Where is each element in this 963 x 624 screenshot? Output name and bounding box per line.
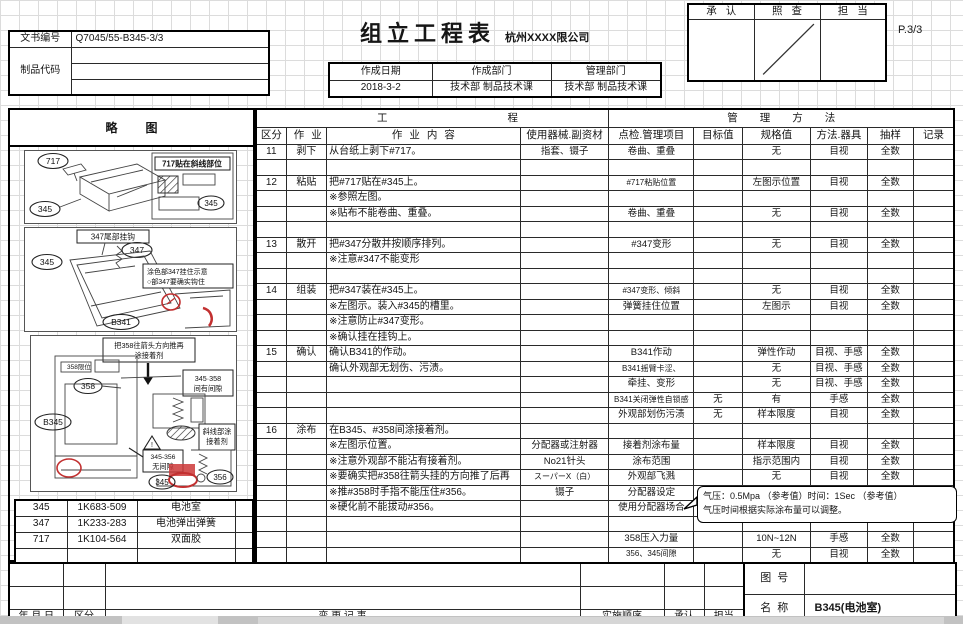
cell: 确认B341的作动。	[327, 346, 521, 362]
cell	[609, 423, 694, 439]
cell: 电池室	[137, 500, 235, 516]
svg-text:把358往箭头方向推再: 把358往箭头方向推再	[114, 341, 184, 350]
cell: 双面胶	[137, 532, 235, 548]
diagonal-slash	[755, 20, 820, 81]
cell: 目视	[811, 439, 867, 455]
cell	[694, 222, 742, 238]
cell	[609, 191, 694, 207]
cell: B341摇臂卡涩、	[609, 361, 694, 377]
cell: ※注意防止#347变形。	[327, 315, 521, 331]
cell: 15	[256, 346, 286, 362]
cell	[256, 408, 286, 424]
cell	[256, 222, 286, 238]
cell: 确认	[286, 346, 326, 362]
cell	[520, 330, 609, 346]
table-row: 11剥下从台纸上剥下#717。指套、镊子卷曲、重叠无目视全数	[256, 144, 954, 160]
cell	[327, 392, 521, 408]
cell	[327, 516, 521, 532]
cell	[286, 191, 326, 207]
svg-text:345: 345	[204, 199, 218, 208]
cell	[520, 299, 609, 315]
cell	[256, 439, 286, 455]
table-row: B341关闭弹性自锁感无有手感全数	[256, 392, 954, 408]
cell: 358压入力量	[609, 532, 694, 548]
cell	[520, 377, 609, 393]
cell: 全数	[867, 237, 913, 253]
cell: ※贴布不能卷曲、重叠。	[327, 206, 521, 222]
cell: 样本限度	[742, 408, 811, 424]
cell: 目视	[811, 454, 867, 470]
cell	[914, 206, 954, 222]
date-label: 作成日期	[329, 63, 432, 80]
product-code-row3	[71, 79, 269, 95]
cell: No21针头	[520, 454, 609, 470]
doc-info-table: 文书编号 Q7045/55-B345-3/3 制品代码	[8, 30, 270, 96]
cell: 全数	[867, 346, 913, 362]
cell: #717粘贴位置	[609, 175, 694, 191]
check-label: 照查	[754, 4, 820, 19]
cell: ※参照左图。	[327, 191, 521, 207]
cell: 手感	[811, 532, 867, 548]
cell	[256, 206, 286, 222]
cell: 目视	[811, 144, 867, 160]
cell	[256, 191, 286, 207]
cell: 全数	[867, 532, 913, 548]
cell	[694, 191, 742, 207]
cell: 14	[256, 284, 286, 300]
col-record: 记录	[914, 127, 954, 144]
cell	[520, 408, 609, 424]
cell	[694, 532, 742, 548]
svg-text:356: 356	[213, 473, 227, 482]
cell	[914, 377, 954, 393]
cell	[286, 377, 326, 393]
cell	[327, 160, 521, 176]
sketch-glue-application: 把358往箭头方向推再 涂接着剂 358限位 358 345·358 间有间隙	[30, 335, 237, 492]
cell	[286, 532, 326, 548]
cell: 指套、镊子	[520, 144, 609, 160]
page-title: 组立工程表	[360, 16, 495, 48]
col-content: 作业内容	[327, 127, 521, 144]
cell: 左图示位置	[742, 175, 811, 191]
cell	[286, 439, 326, 455]
cell: 确认外观部无划伤、污渍。	[327, 361, 521, 377]
cell: 牵挂、变形	[609, 377, 694, 393]
cell	[286, 485, 326, 501]
svg-text:345·358: 345·358	[195, 374, 221, 383]
charge-sign-cell	[820, 19, 886, 81]
strip-segment	[258, 617, 944, 624]
cell	[286, 547, 326, 563]
cell: 散开	[286, 237, 326, 253]
svg-text:接着剂: 接着剂	[206, 437, 228, 446]
table-row: 3451K683-509电池室	[15, 500, 253, 516]
check-sign-cell	[754, 19, 820, 81]
cell	[286, 160, 326, 176]
svg-text:间有间隙: 间有间隙	[194, 384, 223, 393]
svg-text:B341: B341	[111, 317, 131, 327]
cell: 全数	[867, 392, 913, 408]
cell	[694, 454, 742, 470]
cell	[256, 361, 286, 377]
table-row: 7171K104-564双面胶	[15, 532, 253, 548]
cell: 组装	[286, 284, 326, 300]
cell: 16	[256, 423, 286, 439]
cell	[694, 361, 742, 377]
table-row: ※确认挂在挂钩上。	[256, 330, 954, 346]
cell	[914, 423, 954, 439]
cell	[694, 377, 742, 393]
table-row: ※注意防止#347变形。	[256, 315, 954, 331]
cell: 手感	[811, 392, 867, 408]
cell: 全数	[867, 377, 913, 393]
cell: 有	[742, 392, 811, 408]
cell	[256, 454, 286, 470]
table-row: ※参照左图。	[256, 191, 954, 207]
cell: ※确认挂在挂钩上。	[327, 330, 521, 346]
cell	[520, 175, 609, 191]
cell	[256, 392, 286, 408]
cell	[520, 284, 609, 300]
approve-sign-cell	[688, 19, 754, 81]
cell: 717	[15, 532, 67, 548]
cell: 无	[742, 547, 811, 563]
svg-text:717: 717	[46, 156, 60, 166]
cell	[914, 346, 954, 362]
cell	[286, 470, 326, 486]
cell	[286, 253, 326, 269]
cell: 弹性作动	[742, 346, 811, 362]
cell	[286, 361, 326, 377]
cell	[867, 315, 913, 331]
cell	[867, 160, 913, 176]
cell	[520, 361, 609, 377]
cell: 目视、手感	[811, 377, 867, 393]
cell	[520, 392, 609, 408]
svg-text:涂接着剂: 涂接着剂	[135, 351, 164, 360]
col-sampling: 抽样	[867, 127, 913, 144]
cell: 剥下	[286, 144, 326, 160]
cell: 电池弹出弹簧	[137, 516, 235, 532]
cell: 无	[742, 206, 811, 222]
cell	[914, 144, 954, 160]
cell	[286, 392, 326, 408]
cell: 无	[742, 470, 811, 486]
cell	[811, 253, 867, 269]
cell: ※要确实把#358往箭头挂的方向推了后再	[327, 470, 521, 486]
cell: ※推#358时手指不能压住#356。	[327, 485, 521, 501]
cell	[327, 532, 521, 548]
svg-text:B345: B345	[43, 417, 63, 427]
doc-no-value: Q7045/55-B345-3/3	[71, 31, 269, 47]
cell	[235, 532, 253, 548]
product-code-row2	[71, 63, 269, 79]
table-row: 外观部划伤污渍无样本限度目视全数	[256, 408, 954, 424]
cell	[914, 268, 954, 284]
svg-text:!: !	[151, 442, 153, 449]
cell: 把#347分散并按顺序排列。	[327, 237, 521, 253]
cell	[914, 160, 954, 176]
cell: 无	[694, 408, 742, 424]
table-row: ※贴布不能卷曲、重叠。卷曲、重叠无目视全数	[256, 206, 954, 222]
mgmt-dept-value: 技术部 制品技术课	[551, 80, 661, 97]
table-row: 358压入力量10N~12N手感全数	[256, 532, 954, 548]
cell	[914, 547, 954, 563]
cell: 目视、手感	[811, 346, 867, 362]
cell: 全数	[867, 206, 913, 222]
cell	[256, 516, 286, 532]
cell	[327, 408, 521, 424]
cell: ※硬化前不能拔动#356。	[327, 501, 521, 517]
cell	[914, 237, 954, 253]
cell	[811, 160, 867, 176]
cell	[694, 160, 742, 176]
cell: 卷曲、重叠	[609, 144, 694, 160]
cell: B341关闭弹性自锁感	[609, 392, 694, 408]
cell	[867, 253, 913, 269]
cell: 347	[15, 516, 67, 532]
date-value: 2018-3-2	[329, 80, 432, 97]
cell	[694, 315, 742, 331]
cell: 无	[694, 392, 742, 408]
table-row: 12粘贴把#717贴在#345上。#717粘贴位置左图示位置目视全数	[256, 175, 954, 191]
cell	[811, 222, 867, 238]
cell	[694, 253, 742, 269]
cell	[609, 222, 694, 238]
cell	[694, 330, 742, 346]
cell	[742, 160, 811, 176]
table-row: 15确认确认B341的作动。B341作动弹性作动目视、手感全数	[256, 346, 954, 362]
cell	[914, 253, 954, 269]
cell: ※注意#347不能变形	[327, 253, 521, 269]
cell	[694, 284, 742, 300]
cell: 目视	[811, 175, 867, 191]
cell	[256, 268, 286, 284]
cell	[286, 206, 326, 222]
cell: 涂布	[286, 423, 326, 439]
cell: 无	[742, 361, 811, 377]
svg-text:358限位: 358限位	[67, 362, 91, 371]
drawing-no-label: 图号	[744, 563, 804, 594]
process-section-header: 工程	[256, 109, 609, 127]
cell	[914, 175, 954, 191]
company-name: 杭州XXXX限公司	[505, 29, 589, 45]
cell	[867, 268, 913, 284]
col-method: 方法.器具	[811, 127, 867, 144]
cell: 弹簧挂住位置	[609, 299, 694, 315]
sketch-panel: 略图 717 345	[8, 108, 255, 562]
product-code-label: 制品代码	[9, 47, 71, 95]
cell: 无	[742, 144, 811, 160]
col-kubun: 区分	[256, 127, 286, 144]
cell: 全数	[867, 454, 913, 470]
cell: 左图示	[742, 299, 811, 315]
callout-line1: 气压：0.5Mpa （参考值）时间：1Sec （参考值）	[703, 490, 952, 504]
dispenser-setting-callout: 气压：0.5Mpa （参考值）时间：1Sec （参考值） 气压时间根据实际涂布量…	[697, 486, 957, 523]
cell: 10N~12N	[742, 532, 811, 548]
svg-text:○部347要确实钩住: ○部347要确实钩住	[147, 277, 205, 286]
cell	[694, 547, 742, 563]
cell	[256, 547, 286, 563]
cell	[694, 144, 742, 160]
cell: 1K233-283	[67, 516, 137, 532]
cell: 把#717贴在#345上。	[327, 175, 521, 191]
approve-label: 承认	[688, 4, 754, 19]
col-check-item: 点检.管理项目	[609, 127, 694, 144]
table-row: ※注意#347不能变形	[256, 253, 954, 269]
cell	[286, 408, 326, 424]
table-row: ※要确实把#358往箭头挂的方向推了后再スーパーX（白）外观部飞溅无目视全数	[256, 470, 954, 486]
cell	[286, 299, 326, 315]
cell	[520, 532, 609, 548]
product-code-row1	[71, 47, 269, 63]
cell	[694, 206, 742, 222]
cell	[327, 377, 521, 393]
cell: 目视	[811, 206, 867, 222]
cell	[867, 191, 913, 207]
cell	[520, 423, 609, 439]
cell	[286, 454, 326, 470]
cell: 全数	[867, 299, 913, 315]
svg-text:347: 347	[130, 245, 144, 255]
cell: 指示范围内	[742, 454, 811, 470]
cell: ※注意外观部不能沾有接着剂。	[327, 454, 521, 470]
cell	[694, 175, 742, 191]
cell	[742, 315, 811, 331]
strip-segment	[122, 616, 218, 624]
sketch-347-hook: 347尾部挂钩 347 345 涂色部347挂住示意 ○部347要确实钩住	[24, 227, 237, 332]
cell	[742, 253, 811, 269]
cell	[609, 315, 694, 331]
window-bottom-strip	[0, 616, 963, 624]
cell	[694, 268, 742, 284]
cell	[914, 532, 954, 548]
cell	[520, 268, 609, 284]
cell	[256, 160, 286, 176]
cell: 目视	[811, 547, 867, 563]
callout-line2: 气压时间根据实际涂布量可以调整。	[703, 504, 952, 518]
cell	[327, 268, 521, 284]
cell: B341作动	[609, 346, 694, 362]
cell	[914, 191, 954, 207]
callout-tail	[683, 496, 698, 511]
cell	[256, 532, 286, 548]
svg-text:345: 345	[38, 204, 52, 214]
cell	[867, 330, 913, 346]
cell	[609, 253, 694, 269]
charge-label: 担当	[820, 4, 886, 19]
svg-text:358: 358	[81, 381, 95, 391]
cell: ※左图示位置。	[327, 439, 521, 455]
cell	[520, 253, 609, 269]
cell: 无	[742, 377, 811, 393]
cell	[520, 516, 609, 532]
parts-list-table: 3451K683-509电池室3471K233-283电池弹出弹簧7171K10…	[14, 499, 254, 565]
cell: 接着剂涂布量	[609, 439, 694, 455]
cell: 分配器或注射器	[520, 439, 609, 455]
cell	[256, 470, 286, 486]
cell	[694, 423, 742, 439]
cell: 11	[256, 144, 286, 160]
cell	[256, 485, 286, 501]
cell: 全数	[867, 361, 913, 377]
cell	[256, 299, 286, 315]
cell: 12	[256, 175, 286, 191]
meta-table: 图号 名称 B345(电池室)	[743, 562, 957, 624]
cell	[286, 330, 326, 346]
cell	[609, 160, 694, 176]
cell	[742, 330, 811, 346]
cell	[914, 330, 954, 346]
svg-text:347尾部挂钩: 347尾部挂钩	[91, 232, 135, 242]
svg-text:345-356: 345-356	[151, 454, 176, 461]
cell: 在B345、#358间涂接着剂。	[327, 423, 521, 439]
cell: 全数	[867, 547, 913, 563]
cell	[256, 330, 286, 346]
cell	[694, 439, 742, 455]
table-row: ※左图示。装入#345的槽里。弹簧挂住位置左图示目视全数	[256, 299, 954, 315]
cell	[520, 547, 609, 563]
cell: 粘贴	[286, 175, 326, 191]
cell: 目视、手感	[811, 361, 867, 377]
cell: 345	[15, 500, 67, 516]
cell: 全数	[867, 408, 913, 424]
cell	[811, 191, 867, 207]
page-number: P.3/3	[898, 24, 922, 36]
cell	[742, 191, 811, 207]
cell	[914, 408, 954, 424]
approval-table: 承认 照查 担当	[687, 3, 887, 82]
cell	[914, 470, 954, 486]
cell	[286, 268, 326, 284]
col-sagyo: 作业	[286, 127, 326, 144]
cell: スーパーX（白）	[520, 470, 609, 486]
cell	[520, 160, 609, 176]
table-row: 3471K233-283电池弹出弹簧	[15, 516, 253, 532]
cell	[914, 361, 954, 377]
cell: 把#347装在#345上。	[327, 284, 521, 300]
cell	[914, 299, 954, 315]
cell	[914, 454, 954, 470]
cell	[867, 222, 913, 238]
table-row: 13散开把#347分散并按顺序排列。#347变形无目视全数	[256, 237, 954, 253]
cell	[520, 346, 609, 362]
assembly-process-sheet: 文书编号 Q7045/55-B345-3/3 制品代码 组立工程表 杭州XXXX…	[0, 0, 963, 624]
cell	[327, 547, 521, 563]
cell: 全数	[867, 439, 913, 455]
table-row	[256, 160, 954, 176]
sketch-717-position: 717 345 717贴在斜线部位 345	[24, 150, 237, 224]
cell: 无	[742, 237, 811, 253]
cell: 目视	[811, 299, 867, 315]
table-row	[256, 268, 954, 284]
cell: 目视	[811, 284, 867, 300]
svg-text:斜线部涂: 斜线部涂	[203, 427, 232, 436]
cell	[811, 315, 867, 331]
cell	[256, 501, 286, 517]
cell: 356、345间隙	[609, 547, 694, 563]
cell	[811, 423, 867, 439]
dept-table: 作成日期 作成部门 管理部门 2018-3-2 技术部 制品技术课 技术部 制品…	[328, 62, 662, 98]
svg-text:717贴在斜线部位: 717贴在斜线部位	[162, 159, 222, 169]
sketch-panel-title: 略图	[10, 110, 253, 147]
cell	[256, 377, 286, 393]
cell: #347变形	[609, 237, 694, 253]
cell	[520, 222, 609, 238]
cell	[235, 500, 253, 516]
dept-label: 作成部门	[432, 63, 551, 80]
dept-value: 技术部 制品技术课	[432, 80, 551, 97]
